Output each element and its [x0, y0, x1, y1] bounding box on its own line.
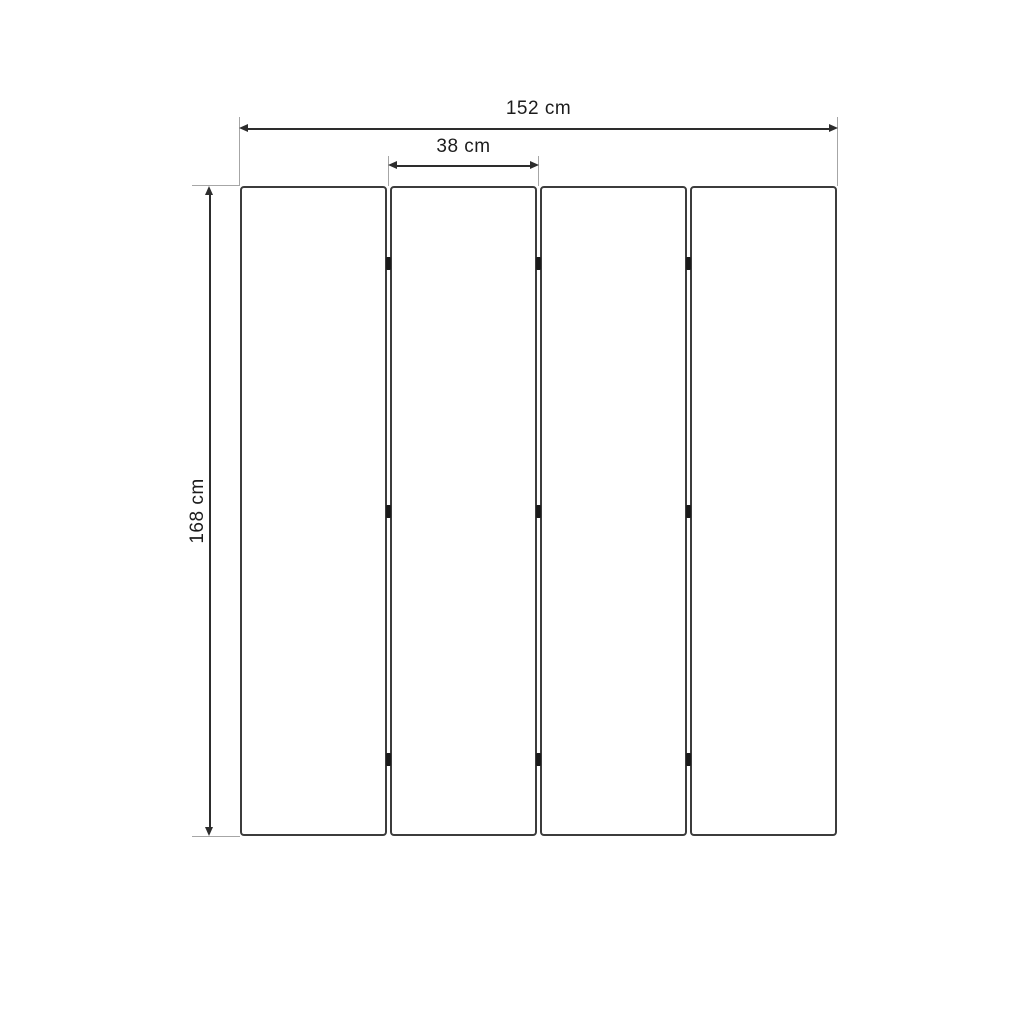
dimension-line [246, 128, 831, 130]
arrow-right-icon [829, 124, 838, 132]
hinge-gap3-middle [686, 505, 691, 518]
total-width-label: 152 cm [239, 98, 838, 120]
hinge-gap1-bottom [386, 753, 391, 766]
panel-width-dimension-line [388, 161, 539, 170]
extension-line-height-bottom [192, 836, 240, 837]
panel-width-label: 38 cm [388, 136, 539, 158]
hinge-gap1-top [386, 257, 391, 270]
arrow-right-icon [530, 161, 539, 169]
hinge-gap1-middle [386, 505, 391, 518]
hinge-gap2-top [536, 257, 541, 270]
arrow-down-icon [205, 827, 213, 836]
dimension-line [395, 165, 532, 167]
panel-4 [690, 186, 837, 836]
extension-line-height-top [192, 185, 240, 186]
height-label: 168 cm [187, 461, 209, 561]
hinge-gap2-middle [536, 505, 541, 518]
hinge-gap2-bottom [536, 753, 541, 766]
total-width-dimension-line [239, 124, 838, 133]
panel-2 [390, 186, 537, 836]
panel-3 [540, 186, 687, 836]
dimension-drawing: 152 cm 38 cm 168 cm [0, 0, 1024, 1024]
panel-1 [240, 186, 387, 836]
hinge-gap3-top [686, 257, 691, 270]
hinge-gap3-bottom [686, 753, 691, 766]
